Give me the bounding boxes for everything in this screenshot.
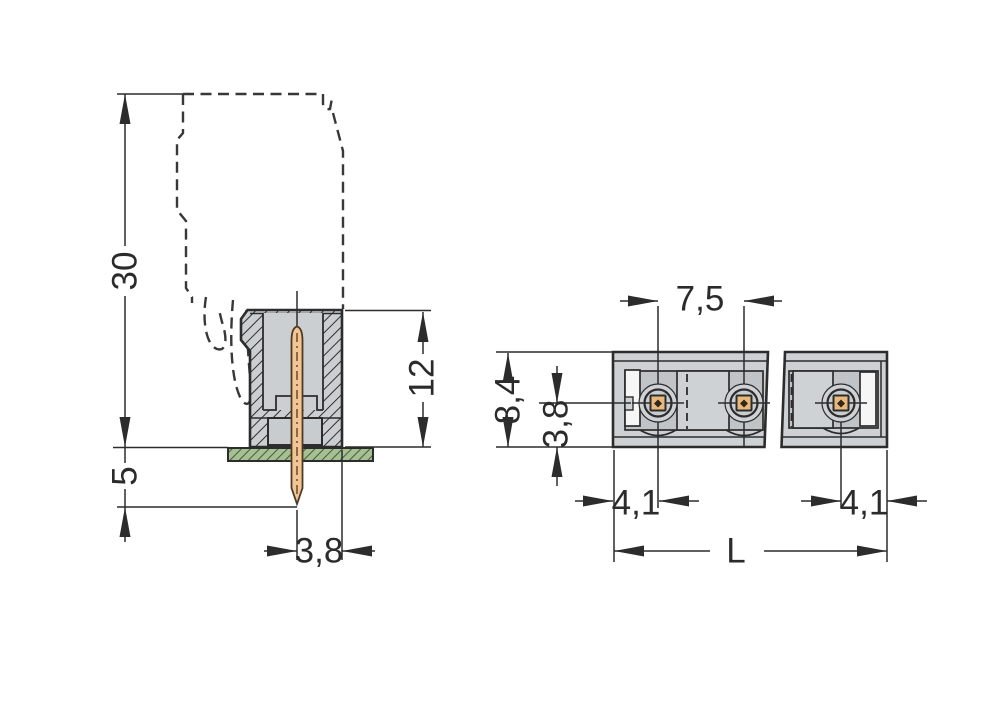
- dim-12-label: 12: [403, 359, 442, 398]
- dim-5-label: 5: [106, 466, 145, 485]
- dim-side-total-height: 30: [106, 94, 184, 463]
- dim-top-total-length: L: [614, 532, 887, 571]
- dim-top-pin-pitch: 7,5: [620, 280, 782, 319]
- dim-3-8-top-label: 3,8: [537, 400, 576, 449]
- dim-side-body-height: 12: [345, 311, 442, 448]
- dim-3-8-side-label: 3,8: [295, 532, 344, 571]
- top-view: 7,5 8,4 3,8 4,1: [489, 280, 928, 571]
- connector-dimension-drawing: 30 5 12 3,8: [0, 0, 1000, 719]
- dim-side-pin-to-edge: 3,8: [264, 450, 375, 571]
- side-view: 30 5 12 3,8: [106, 94, 442, 571]
- dim-top-end-offset-right: 4,1: [801, 450, 927, 562]
- dim-4-1-left-label: 4,1: [612, 484, 661, 523]
- dim-4-1-right-label: 4,1: [840, 484, 889, 523]
- dim-30-label: 30: [106, 252, 145, 291]
- phantom-latch-finger: [204, 297, 225, 349]
- dim-top-end-offset-left: 4,1: [575, 450, 699, 562]
- dim-7-5-label: 7,5: [676, 280, 725, 319]
- dim-L-label: L: [726, 532, 745, 571]
- dim-8-4-label: 8,4: [489, 376, 528, 425]
- keying-slot-right: [860, 372, 876, 426]
- technical-drawing-page: 30 5 12 3,8: [0, 0, 1000, 719]
- chamber-wall-block: [677, 371, 729, 430]
